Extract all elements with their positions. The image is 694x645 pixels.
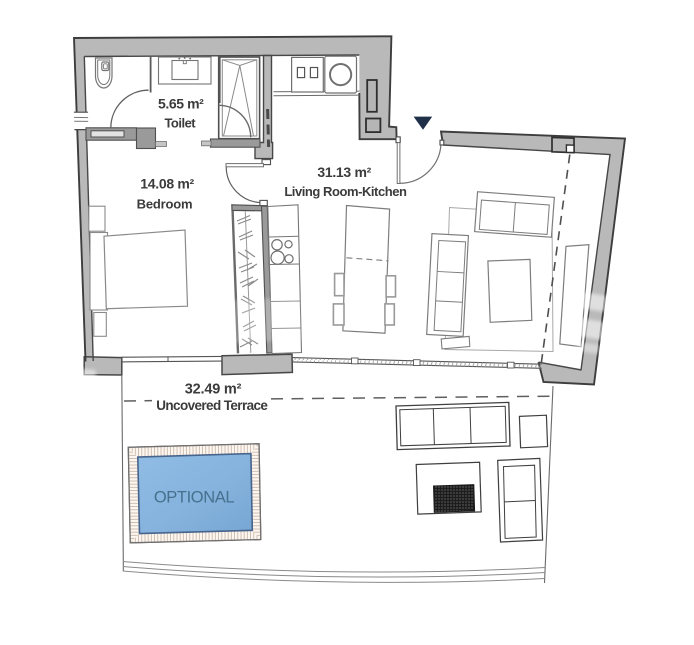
svg-text:Living Room-Kitchen: Living Room-Kitchen: [284, 184, 407, 199]
svg-text:Toilet: Toilet: [164, 116, 196, 131]
svg-text:Uncovered Terrace: Uncovered Terrace: [156, 398, 268, 413]
svg-text:5.65 m²: 5.65 m²: [158, 96, 204, 112]
svg-text:31.13 m²: 31.13 m²: [317, 164, 371, 180]
svg-text:OPTIONAL: OPTIONAL: [154, 489, 234, 507]
svg-text:Bedroom: Bedroom: [137, 197, 193, 212]
svg-text:32.49 m²: 32.49 m²: [185, 382, 242, 398]
svg-text:14.08 m²: 14.08 m²: [140, 176, 194, 192]
